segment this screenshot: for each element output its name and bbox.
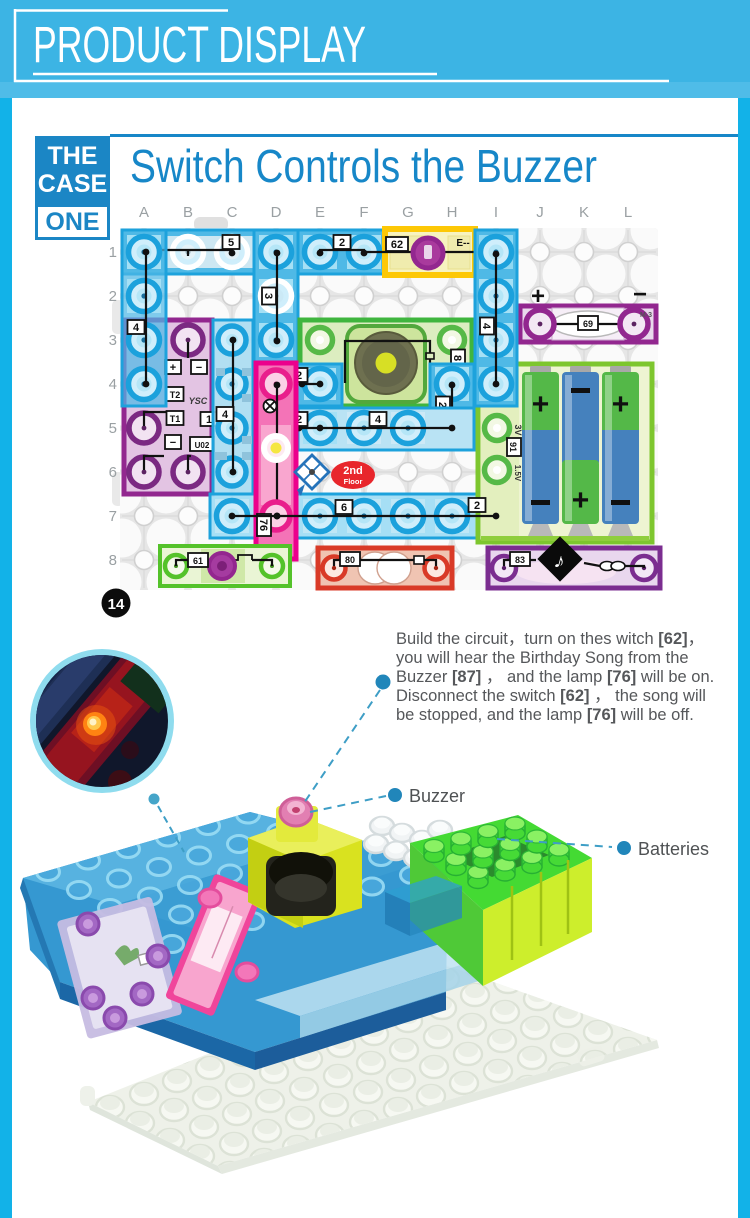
svg-text:+: + xyxy=(612,388,630,421)
svg-text:D: D xyxy=(271,204,282,221)
svg-text:E: E xyxy=(315,204,325,221)
svg-text:U02: U02 xyxy=(195,441,210,450)
svg-text:14: 14 xyxy=(108,596,125,613)
svg-text:C: C xyxy=(227,204,238,221)
svg-text:−: − xyxy=(170,437,176,449)
svg-text:3: 3 xyxy=(109,332,117,349)
svg-text:76: 76 xyxy=(257,519,269,531)
svg-text:6: 6 xyxy=(109,464,117,481)
svg-text:F: F xyxy=(359,204,368,221)
svg-text:H: H xyxy=(447,204,458,221)
svg-text:8: 8 xyxy=(109,552,117,569)
svg-text:2: 2 xyxy=(109,288,117,305)
svg-text:A: A xyxy=(139,204,149,221)
svg-text:3: 3 xyxy=(262,293,274,299)
svg-text:T2: T2 xyxy=(170,390,181,400)
svg-text:Floor: Floor xyxy=(344,477,363,486)
svg-text:G: G xyxy=(402,204,414,221)
svg-text:Batteries: Batteries xyxy=(638,839,709,859)
svg-text:−: − xyxy=(196,362,202,374)
svg-text:3V: 3V xyxy=(513,424,523,435)
svg-text:+: + xyxy=(170,362,176,374)
svg-text:L: L xyxy=(624,204,632,221)
svg-text:5: 5 xyxy=(228,237,234,249)
svg-text:1.5V: 1.5V xyxy=(513,465,522,482)
svg-text:2: 2 xyxy=(474,500,480,512)
svg-text:I: I xyxy=(494,204,498,221)
svg-text:2nd: 2nd xyxy=(343,465,363,477)
svg-text:7: 7 xyxy=(109,508,117,525)
svg-text:2: 2 xyxy=(339,237,345,249)
svg-text:4: 4 xyxy=(222,409,229,421)
svg-text:4: 4 xyxy=(133,322,140,334)
svg-text:M-3: M-3 xyxy=(640,312,652,319)
svg-text:8: 8 xyxy=(451,355,463,361)
svg-text:K: K xyxy=(579,204,589,221)
svg-text:J: J xyxy=(536,204,544,221)
svg-text:+: + xyxy=(532,388,550,421)
svg-text:62: 62 xyxy=(391,239,403,251)
svg-text:91: 91 xyxy=(508,442,518,452)
svg-text:61: 61 xyxy=(193,556,203,566)
svg-text:1: 1 xyxy=(206,414,212,426)
svg-text:YSC: YSC xyxy=(189,396,208,406)
svg-text:T1: T1 xyxy=(170,414,181,424)
svg-text:6: 6 xyxy=(341,502,347,514)
svg-text:4: 4 xyxy=(480,323,492,330)
svg-text:4: 4 xyxy=(109,376,117,393)
svg-text:5: 5 xyxy=(109,420,117,437)
svg-text:B: B xyxy=(183,204,193,221)
svg-text:E--: E-- xyxy=(456,238,469,249)
svg-text:1: 1 xyxy=(109,244,117,261)
svg-text:80: 80 xyxy=(345,555,355,565)
svg-text:69: 69 xyxy=(583,319,593,329)
svg-text:Buzzer: Buzzer xyxy=(409,786,465,806)
svg-text:+: + xyxy=(572,484,590,517)
svg-text:83: 83 xyxy=(515,555,525,565)
svg-text:4: 4 xyxy=(375,414,382,426)
